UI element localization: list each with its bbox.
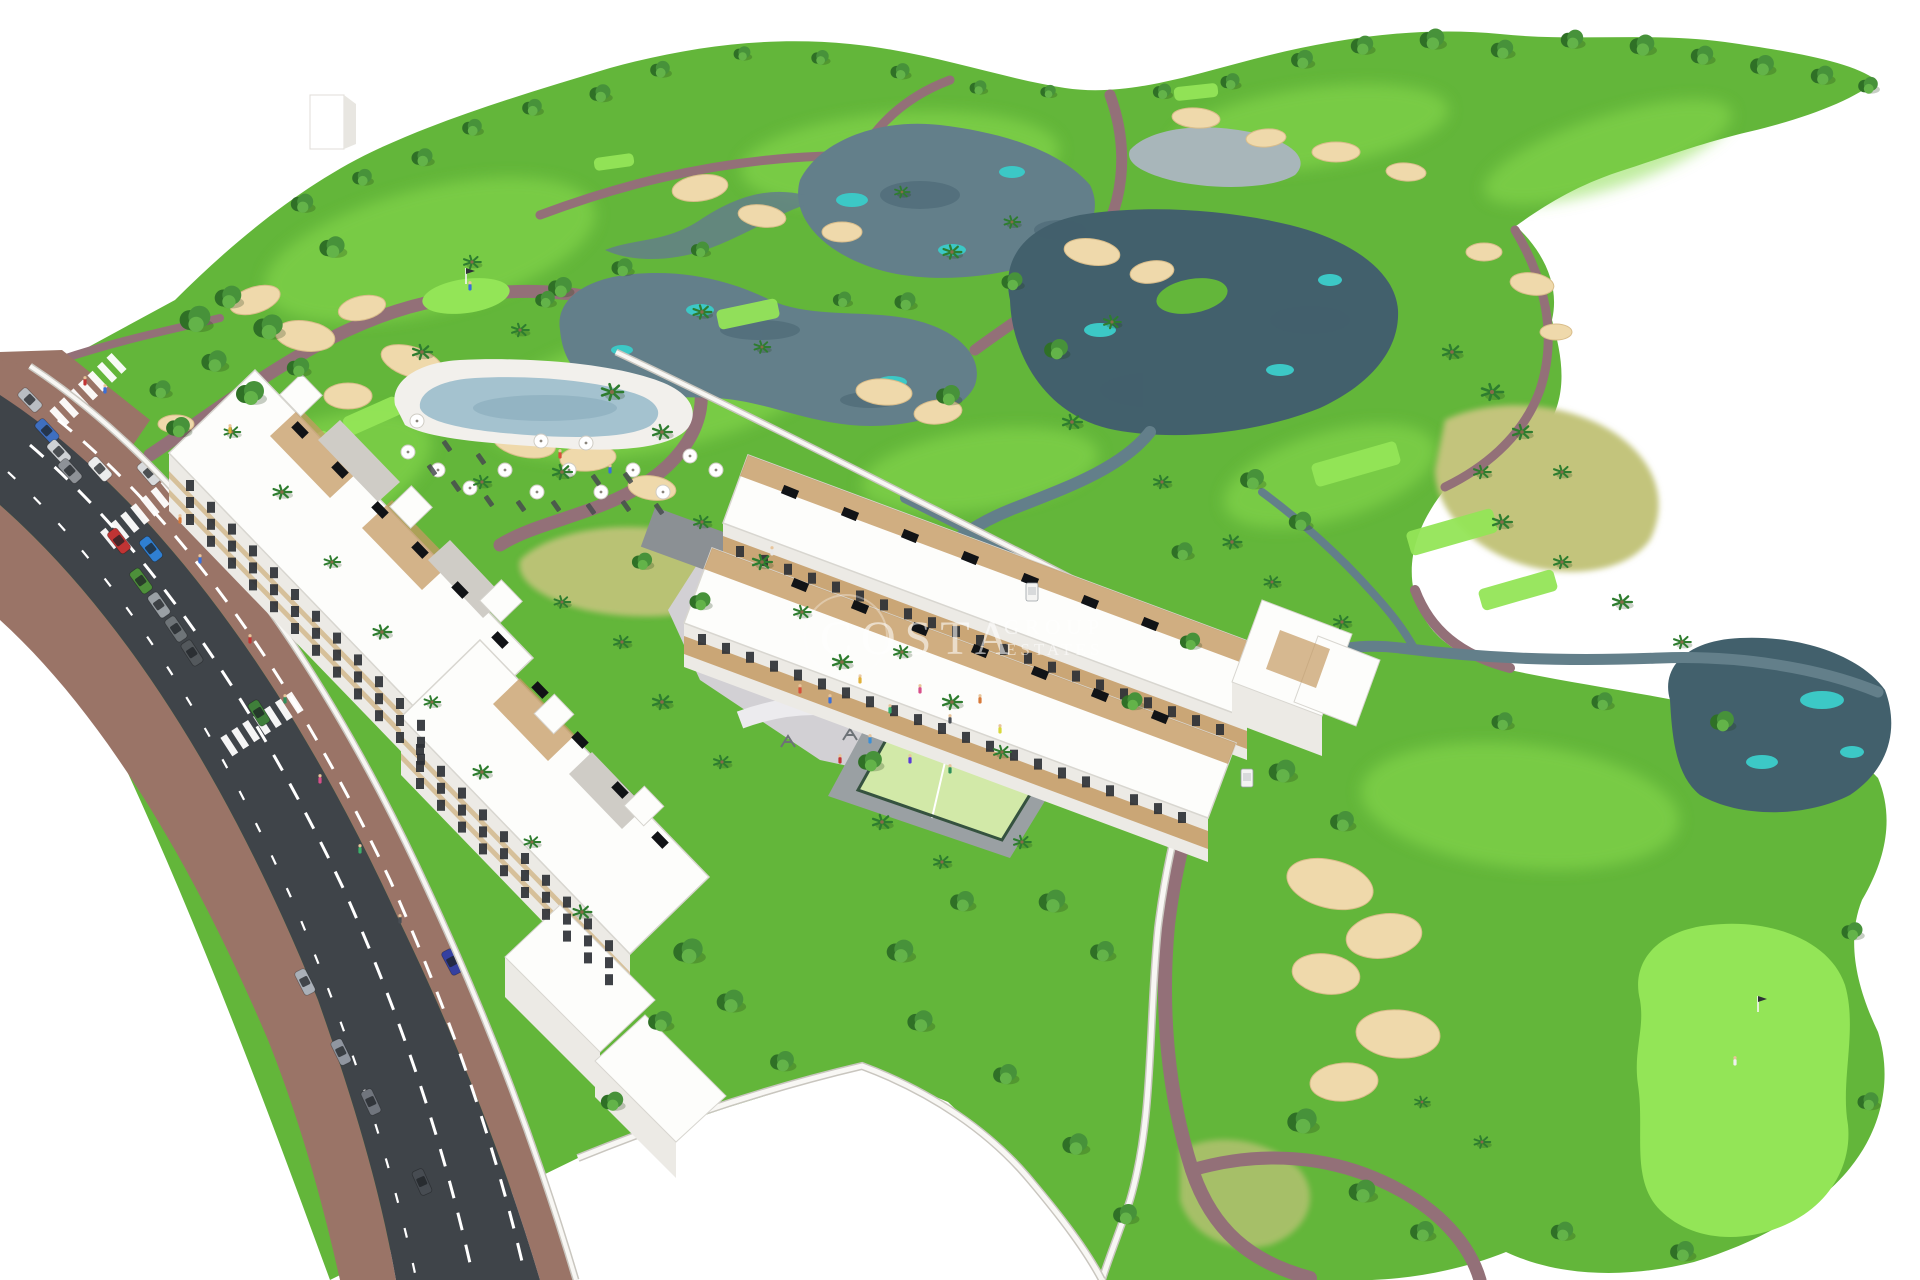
person-head	[228, 424, 231, 427]
palm-trunk	[1520, 430, 1524, 434]
palm-trunk	[620, 640, 623, 643]
window	[479, 826, 487, 837]
person-head	[998, 724, 1001, 727]
palm-trunk	[901, 191, 904, 194]
palm-trunk	[1560, 560, 1563, 563]
person-head	[978, 694, 981, 697]
tree-canopy	[1296, 1119, 1311, 1134]
palm-trunk	[610, 390, 614, 394]
palm-trunk	[1490, 390, 1494, 394]
window	[396, 732, 404, 743]
person-body	[398, 917, 401, 924]
person	[398, 914, 401, 923]
window	[986, 741, 994, 752]
window	[832, 582, 840, 593]
palm-trunk	[560, 470, 564, 474]
palm-trunk	[380, 630, 383, 633]
person-head	[558, 449, 561, 452]
tree-canopy	[1417, 1229, 1429, 1241]
umbrella-pole	[600, 491, 603, 494]
person-body	[1733, 1059, 1736, 1066]
window	[1168, 706, 1176, 717]
tree-canopy	[1051, 347, 1063, 359]
putting-green-bottom-right	[1637, 924, 1850, 1237]
window	[1192, 715, 1200, 726]
window	[249, 562, 257, 573]
tree-canopy	[1226, 80, 1236, 90]
person-head	[608, 464, 611, 467]
person-head	[318, 774, 321, 777]
palm-trunk	[1620, 600, 1624, 604]
person	[228, 424, 231, 433]
person-head	[798, 684, 801, 687]
sand-bunker	[324, 383, 372, 409]
tree-canopy	[1357, 44, 1368, 55]
tree-canopy	[1864, 1100, 1875, 1111]
tee-box	[1477, 569, 1558, 612]
monolith-front	[310, 95, 344, 149]
person-head	[468, 281, 471, 284]
umbrella	[579, 436, 593, 450]
person-body	[248, 637, 251, 644]
person	[908, 754, 911, 763]
window	[291, 589, 299, 600]
window	[396, 698, 404, 709]
umbrella-pole	[715, 469, 718, 472]
window	[1130, 794, 1138, 805]
tree-canopy	[1337, 819, 1349, 831]
tree-canopy	[1120, 1212, 1132, 1224]
window	[500, 865, 508, 876]
palm-trunk	[280, 490, 283, 493]
person-body	[858, 677, 861, 684]
tree-canopy	[655, 1019, 667, 1031]
palm-trunk	[700, 520, 703, 523]
window	[416, 778, 424, 789]
umbrella-pole	[536, 491, 539, 494]
tree-canopy	[1045, 90, 1053, 98]
palm-trunk	[660, 430, 664, 434]
person	[103, 384, 106, 393]
window	[437, 800, 445, 811]
person-body	[868, 737, 871, 744]
person-body	[908, 757, 911, 764]
tree-canopy	[915, 1019, 928, 1032]
window	[500, 831, 508, 842]
window	[962, 732, 970, 743]
tree-canopy	[1178, 550, 1189, 561]
tree-canopy	[1497, 48, 1508, 59]
tree-canopy	[528, 106, 538, 116]
tree-canopy	[1128, 700, 1139, 711]
window	[312, 628, 320, 639]
tree-canopy	[156, 388, 167, 399]
person-head	[283, 694, 286, 697]
window	[938, 723, 946, 734]
person	[358, 844, 361, 853]
window	[784, 564, 792, 575]
window	[479, 843, 487, 854]
palm-trunk	[800, 610, 803, 613]
person-head	[770, 546, 773, 549]
person	[248, 634, 251, 643]
tree-canopy	[901, 300, 912, 311]
window	[605, 957, 613, 968]
palm-trunk	[1271, 581, 1274, 584]
umbrella-pole	[540, 440, 543, 443]
window	[207, 536, 215, 547]
person	[198, 554, 201, 563]
person	[918, 684, 921, 693]
person-head	[248, 634, 251, 637]
person-body	[948, 717, 951, 724]
tree-canopy	[1848, 930, 1859, 941]
window	[1072, 671, 1080, 682]
window	[866, 696, 874, 707]
tree-canopy	[894, 949, 907, 962]
window	[605, 974, 613, 985]
window	[249, 545, 257, 556]
umbrella-pole	[437, 469, 440, 472]
person	[468, 281, 471, 290]
tree-canopy	[656, 68, 666, 78]
window	[808, 573, 816, 584]
window	[312, 611, 320, 622]
tree-canopy	[1598, 700, 1609, 711]
palm-trunk	[531, 841, 534, 844]
palm-trunk	[1230, 540, 1233, 543]
window	[437, 766, 445, 777]
person	[558, 449, 561, 458]
window	[228, 541, 236, 552]
window	[333, 667, 341, 678]
person-head	[918, 684, 921, 687]
person	[828, 694, 831, 703]
tree-canopy	[1097, 949, 1109, 961]
person	[608, 464, 611, 473]
person-body	[198, 557, 201, 564]
window	[270, 601, 278, 612]
tree-canopy	[943, 393, 955, 405]
golf-cart	[1026, 583, 1038, 601]
person-body	[608, 467, 611, 474]
person-head	[908, 754, 911, 757]
window	[228, 558, 236, 569]
umbrella-pole	[689, 455, 692, 458]
tree-canopy	[541, 298, 551, 308]
tree-canopy	[838, 298, 847, 307]
person-head	[1733, 1056, 1736, 1059]
window	[736, 546, 744, 557]
palm-trunk	[420, 350, 424, 354]
tree-canopy	[1697, 54, 1708, 65]
palm-trunk	[1480, 470, 1483, 473]
window	[521, 853, 529, 864]
person-head	[838, 754, 841, 757]
window	[1096, 680, 1104, 691]
person-body	[318, 777, 321, 784]
person-head	[178, 514, 181, 517]
window	[186, 497, 194, 508]
window	[333, 650, 341, 661]
tree-canopy	[777, 1059, 789, 1071]
umbrella	[410, 414, 424, 428]
window	[417, 720, 425, 731]
person-body	[228, 427, 231, 434]
window	[1082, 776, 1090, 787]
window	[312, 645, 320, 656]
window	[818, 679, 826, 690]
sand-bunker	[822, 222, 862, 242]
palm-trunk	[760, 560, 764, 564]
person-body	[558, 452, 561, 459]
palm-trunk	[940, 860, 943, 863]
tree-canopy	[1295, 520, 1306, 531]
sand-bunker	[1540, 324, 1572, 340]
tree-canopy	[738, 52, 746, 60]
tree-canopy	[1158, 90, 1167, 99]
person-head	[358, 844, 361, 847]
palm-trunk	[1450, 350, 1454, 354]
person	[978, 694, 981, 703]
person	[888, 704, 891, 713]
cart-canopy	[1028, 587, 1036, 595]
cart-canopy	[1243, 773, 1251, 781]
palm-trunk	[561, 601, 564, 604]
window	[396, 715, 404, 726]
umbrella	[709, 463, 723, 477]
person-body	[888, 707, 891, 714]
tree-canopy	[816, 56, 825, 65]
palm-trunk	[1481, 1141, 1484, 1144]
tree-canopy	[618, 266, 629, 277]
window	[521, 870, 529, 881]
tree-canopy	[1557, 1230, 1568, 1241]
tree-canopy	[1717, 719, 1729, 731]
window	[228, 524, 236, 535]
window	[563, 914, 571, 925]
tree-canopy	[555, 285, 567, 297]
tree-canopy	[1637, 43, 1649, 55]
window	[698, 634, 706, 645]
window	[584, 935, 592, 946]
tree-canopy	[297, 202, 308, 213]
tree-canopy	[607, 1100, 618, 1111]
window	[375, 693, 383, 704]
window	[794, 670, 802, 681]
render-canvas: COSTA GROUP ESTATES	[0, 0, 1920, 1280]
umbrella-pole	[662, 491, 665, 494]
window	[458, 788, 466, 799]
window	[722, 643, 730, 654]
palm-trunk	[480, 770, 483, 773]
umbrella-pole	[407, 451, 410, 454]
window	[416, 761, 424, 772]
window	[542, 892, 550, 903]
window	[186, 480, 194, 491]
window	[542, 875, 550, 886]
tree-canopy	[1046, 899, 1059, 912]
person	[798, 684, 801, 693]
palm-trunk	[1680, 640, 1683, 643]
tree-canopy	[1247, 477, 1259, 489]
tree-canopy	[865, 759, 877, 771]
person	[948, 714, 951, 723]
person-body	[838, 757, 841, 764]
palm-trunk	[700, 310, 703, 313]
window	[333, 633, 341, 644]
golf-cart	[1241, 769, 1253, 787]
window	[458, 805, 466, 816]
person-body	[178, 517, 181, 524]
person-head	[83, 376, 86, 379]
window	[914, 714, 922, 725]
umbrella	[463, 481, 477, 495]
person	[838, 754, 841, 763]
window	[584, 952, 592, 963]
window	[1034, 759, 1042, 770]
window	[500, 848, 508, 859]
tree-canopy	[293, 366, 304, 377]
person	[178, 514, 181, 523]
palm-trunk	[470, 260, 473, 263]
person-head	[103, 384, 106, 387]
palm-trunk	[720, 760, 723, 763]
person-body	[978, 697, 981, 704]
tree-canopy	[222, 295, 235, 308]
palm-trunk	[580, 910, 583, 913]
tree-canopy	[1817, 74, 1828, 85]
window	[291, 606, 299, 617]
person-body	[358, 847, 361, 854]
window	[270, 584, 278, 595]
tree-canopy	[468, 126, 478, 136]
palm-trunk	[1500, 520, 1504, 524]
tree-canopy	[1276, 769, 1289, 782]
tree-canopy	[1567, 38, 1578, 49]
tree-canopy	[327, 245, 340, 258]
window	[375, 676, 383, 687]
palm-trunk	[880, 820, 884, 824]
umbrella-pole	[585, 442, 588, 445]
watermark-estates: ESTATES	[1006, 640, 1103, 659]
window	[291, 623, 299, 634]
umbrella	[656, 485, 670, 499]
palm-trunk	[1011, 221, 1014, 224]
tree-canopy	[209, 359, 222, 372]
tree-canopy	[1070, 1142, 1083, 1155]
person	[868, 734, 871, 743]
person	[83, 376, 86, 385]
person	[318, 774, 321, 783]
sand-bunker	[1312, 142, 1360, 162]
white-monolith	[310, 95, 356, 149]
watermark-costa: COSTA	[820, 612, 1019, 665]
aerial-render: COSTA GROUP ESTATES	[0, 0, 1920, 1280]
tree-canopy	[696, 248, 705, 257]
window	[270, 567, 278, 578]
palm-trunk	[331, 561, 334, 564]
person-body	[770, 549, 773, 556]
window	[437, 783, 445, 794]
sand-bunker	[1466, 243, 1502, 261]
monolith-side	[344, 95, 356, 149]
person	[1733, 1056, 1736, 1065]
person-body	[283, 697, 286, 704]
tree-canopy	[1677, 1249, 1689, 1261]
person-head	[888, 704, 891, 707]
tree-canopy	[696, 600, 707, 611]
window	[1144, 697, 1152, 708]
tree-canopy	[957, 899, 969, 911]
tree-canopy	[262, 325, 277, 340]
window	[249, 579, 257, 590]
tree-canopy	[1297, 58, 1308, 69]
window	[416, 744, 424, 755]
umbrella-pole	[416, 420, 419, 423]
palm-trunk	[480, 480, 483, 483]
window	[354, 671, 362, 682]
window	[1178, 812, 1186, 823]
umbrella	[401, 445, 415, 459]
tree-canopy	[1427, 37, 1439, 49]
window	[563, 897, 571, 908]
window	[521, 887, 529, 898]
tree-canopy	[896, 70, 906, 80]
palm-trunk	[1110, 320, 1113, 323]
palm-trunk	[1421, 1101, 1424, 1104]
tree-canopy	[596, 92, 607, 103]
tree-canopy	[1757, 63, 1769, 75]
umbrella	[594, 485, 608, 499]
palm-trunk	[950, 700, 954, 704]
window	[1216, 724, 1224, 735]
tree-canopy	[1498, 720, 1509, 731]
tree-canopy	[1356, 1189, 1369, 1202]
tree-canopy	[188, 317, 203, 332]
window	[842, 687, 850, 698]
palm-trunk	[431, 701, 434, 704]
palm-tree	[1613, 595, 1634, 609]
tree-canopy	[1864, 84, 1874, 94]
person-body	[828, 697, 831, 704]
person-head	[948, 764, 951, 767]
window	[458, 822, 466, 833]
person	[948, 764, 951, 773]
person-head	[948, 714, 951, 717]
tree-canopy	[418, 156, 429, 167]
window	[479, 809, 487, 820]
dry-patch-right	[1435, 405, 1659, 571]
tree	[1561, 30, 1586, 49]
person-body	[798, 687, 801, 694]
tree-canopy	[244, 391, 258, 405]
window	[584, 918, 592, 929]
window	[207, 519, 215, 530]
window	[1048, 662, 1056, 673]
palm-trunk	[1160, 480, 1163, 483]
palm-trunk	[1070, 420, 1074, 424]
tree-canopy	[1186, 640, 1196, 650]
window	[770, 661, 778, 672]
palm-trunk	[1000, 750, 1003, 753]
umbrella	[530, 485, 544, 499]
person	[770, 546, 773, 555]
tree-canopy	[682, 949, 697, 964]
window	[1154, 803, 1162, 814]
palm-trunk	[761, 346, 764, 349]
person	[998, 724, 1001, 733]
